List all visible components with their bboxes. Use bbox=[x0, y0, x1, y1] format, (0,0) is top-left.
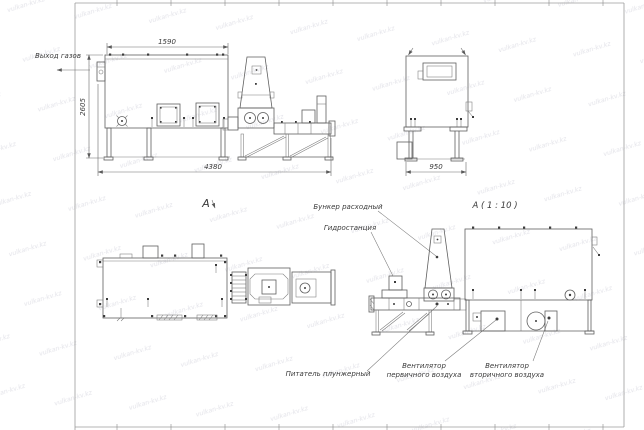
cad-drawing: vulkan-kv.kz vulkan-kv.kz bbox=[0, 0, 644, 430]
watermark-layer bbox=[0, 0, 644, 430]
callout-secondary-fan-line1: Вентилятор bbox=[485, 362, 529, 370]
callout-primary-fan-line2: первичного воздуха bbox=[387, 371, 462, 379]
dim-950-text: 950 bbox=[429, 163, 443, 171]
view-a-label: А bbox=[201, 197, 210, 210]
dim-1590-text: 1590 bbox=[158, 38, 176, 46]
callout-hydraulic-label: Гидростанция bbox=[324, 224, 376, 232]
gas-outlet-label: Выход газов bbox=[35, 52, 81, 60]
callout-hopper-label: Бункер расходный bbox=[313, 203, 383, 211]
callout-secondary-fan-line2: вторичного воздуха bbox=[470, 371, 544, 379]
dim-2605-text: 2605 bbox=[79, 98, 87, 116]
dim-4380-text: 4380 bbox=[204, 163, 222, 171]
detail-title: А ( 1 : 10 ) bbox=[471, 201, 517, 211]
callout-feeder-label: Питатель плунжерный bbox=[286, 370, 371, 378]
callout-primary-fan-line1: Вентилятор bbox=[402, 362, 446, 370]
drawing-sheet: vulkan-kv.kz vulkan-kv.kz bbox=[0, 0, 644, 430]
